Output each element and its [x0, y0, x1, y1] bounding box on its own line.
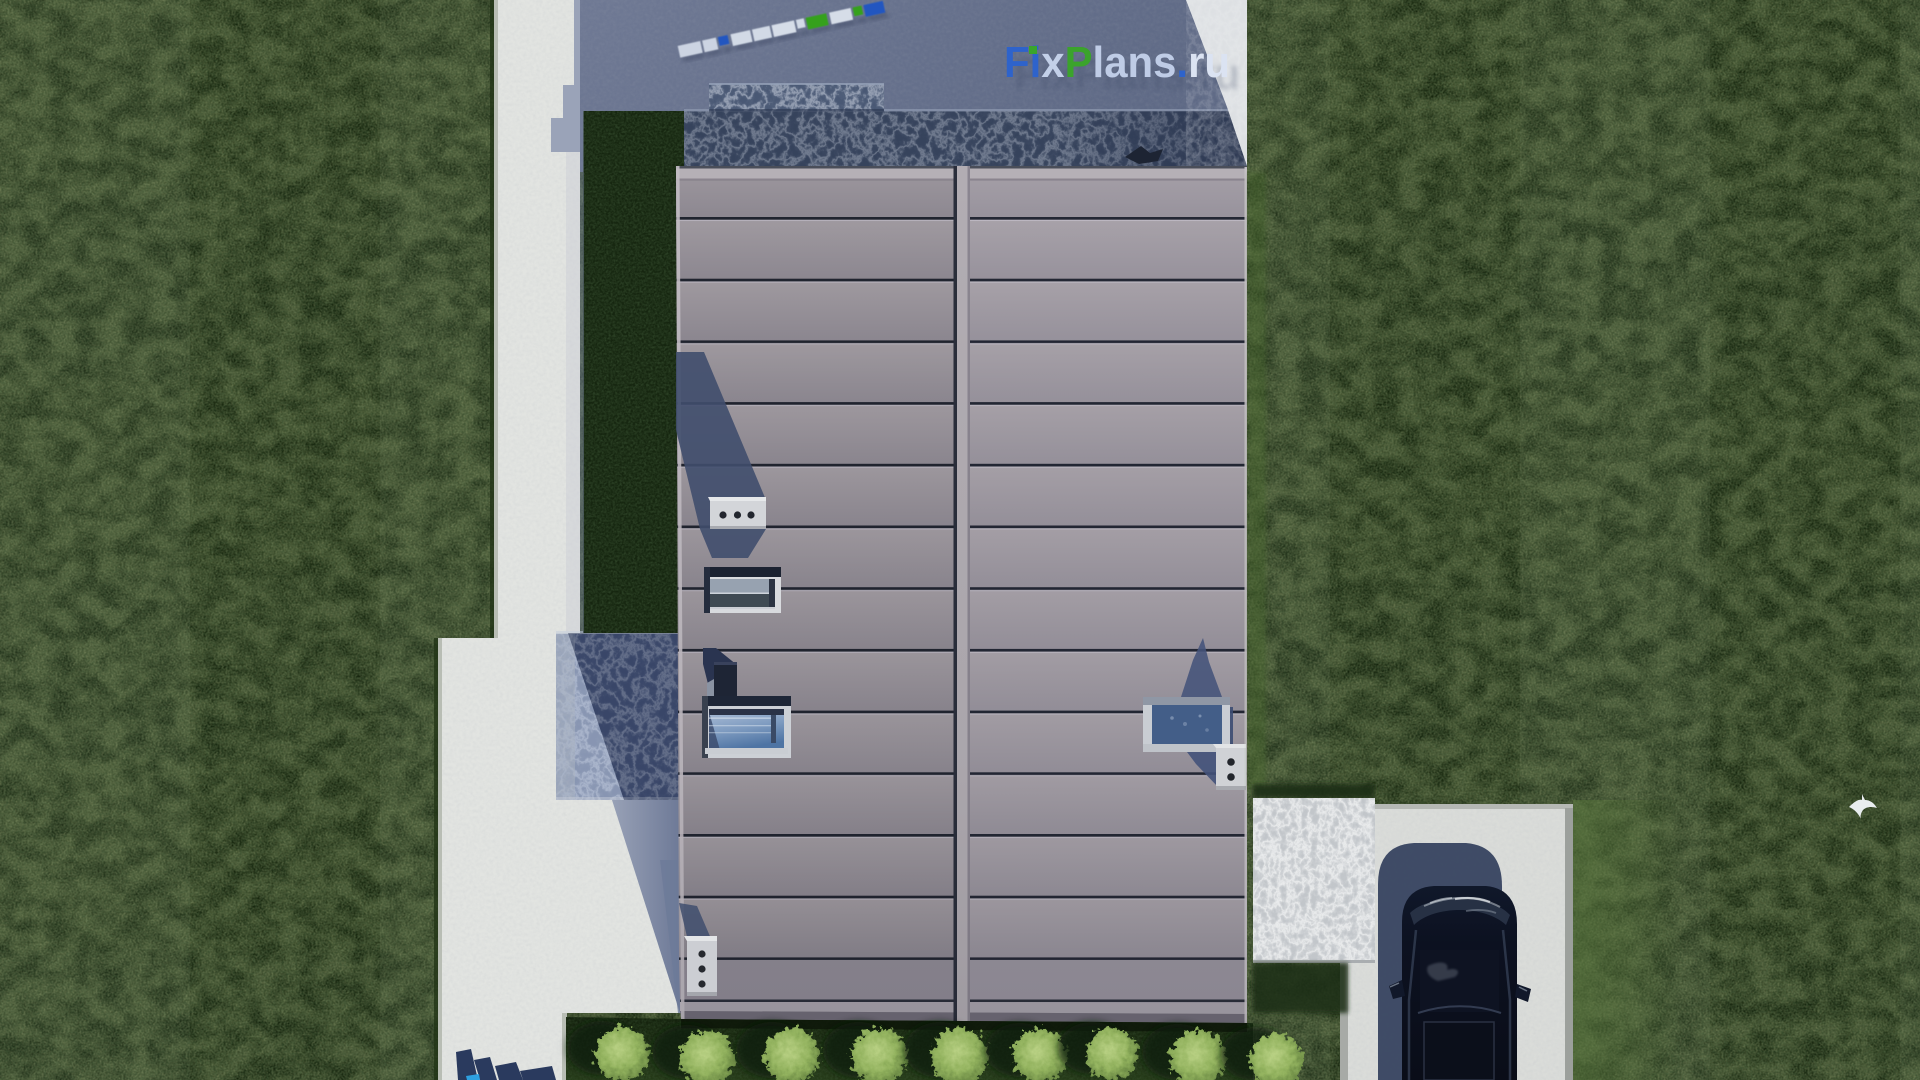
- svg-text:FixPlans.ru: FixPlans.ru: [1004, 38, 1230, 87]
